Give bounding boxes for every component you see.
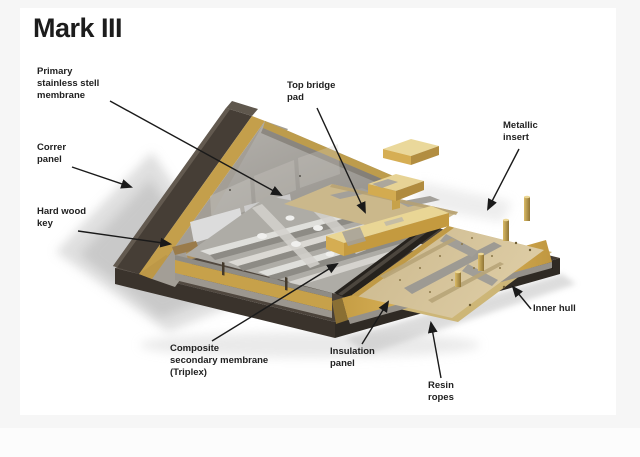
label-composite-secondary-membrane: Composite secondary membrane (Triplex)	[170, 343, 268, 379]
label-top-bridge-pad: Top bridge pad	[287, 80, 335, 104]
label-hard-wood-key: Hard wood key	[37, 206, 86, 230]
page: { "page": { "background_color": "#f6f6f6…	[0, 0, 640, 457]
page-title: Mark III	[33, 13, 122, 44]
label-corner-panel: Correr panel	[37, 142, 66, 166]
label-inner-hull: Inner hull	[533, 303, 576, 315]
label-resin-ropes: Resin ropes	[428, 380, 454, 404]
label-primary-membrane: Primary stainless stell membrane	[37, 66, 99, 102]
label-metallic-insert: Metallic insert	[503, 120, 538, 144]
label-insulation-panel: Insulation panel	[330, 346, 375, 370]
